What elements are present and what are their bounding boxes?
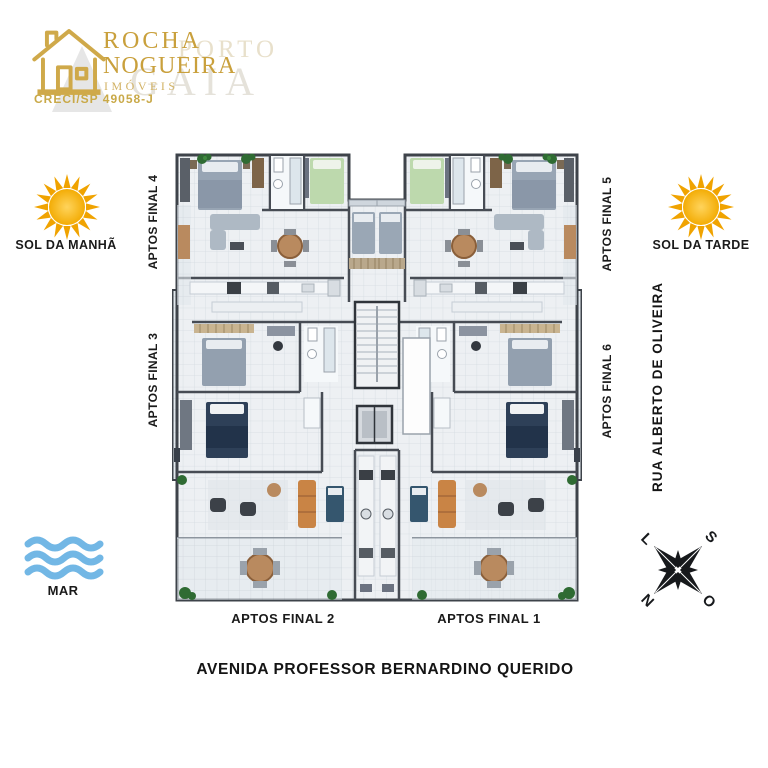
compass-south-letter: S <box>701 528 720 547</box>
sun-morning-label: SOL DA MANHÃ <box>2 238 130 252</box>
compass-rose-icon: S N L O <box>628 520 728 620</box>
avenue-label: AVENIDA PROFESSOR BERNARDINO QUERIDO <box>175 661 595 679</box>
compass-west-letter: O <box>699 591 720 612</box>
stairs <box>355 302 399 388</box>
apts-final-4-label: APTOS FINAL 4 <box>145 162 161 282</box>
core-corridor <box>403 338 430 434</box>
logo-line1: ROCHA <box>103 28 202 55</box>
page: PORTO GAIA ROCHA NOGUEIRA IMÓVEIS CRECI/… <box>0 0 768 768</box>
sea-label: MAR <box>13 583 113 598</box>
sun-afternoon-icon <box>665 171 737 243</box>
sea-waves-icon <box>23 534 107 584</box>
logo-line2: NOGUEIRA <box>103 53 236 80</box>
apts-final-1-label: APTOS FINAL 1 <box>409 611 569 626</box>
logo-creci: CRECI/SP 49058-J <box>34 92 154 106</box>
elevator <box>357 406 392 443</box>
apts-final-3-label: APTOS FINAL 3 <box>145 320 161 440</box>
floor-plan <box>172 150 582 605</box>
compass-east-letter: L <box>637 530 656 549</box>
apts-final-6-label: APTOS FINAL 6 <box>599 331 615 451</box>
sun-afternoon-label: SOL DA TARDE <box>637 238 765 252</box>
sun-morning-icon <box>31 171 103 243</box>
apts-final-2-label: APTOS FINAL 2 <box>203 611 363 626</box>
street-label: RUA ALBERTO DE OLIVEIRA <box>649 272 667 502</box>
apts-final-5-label: APTOS FINAL 5 <box>599 164 615 284</box>
